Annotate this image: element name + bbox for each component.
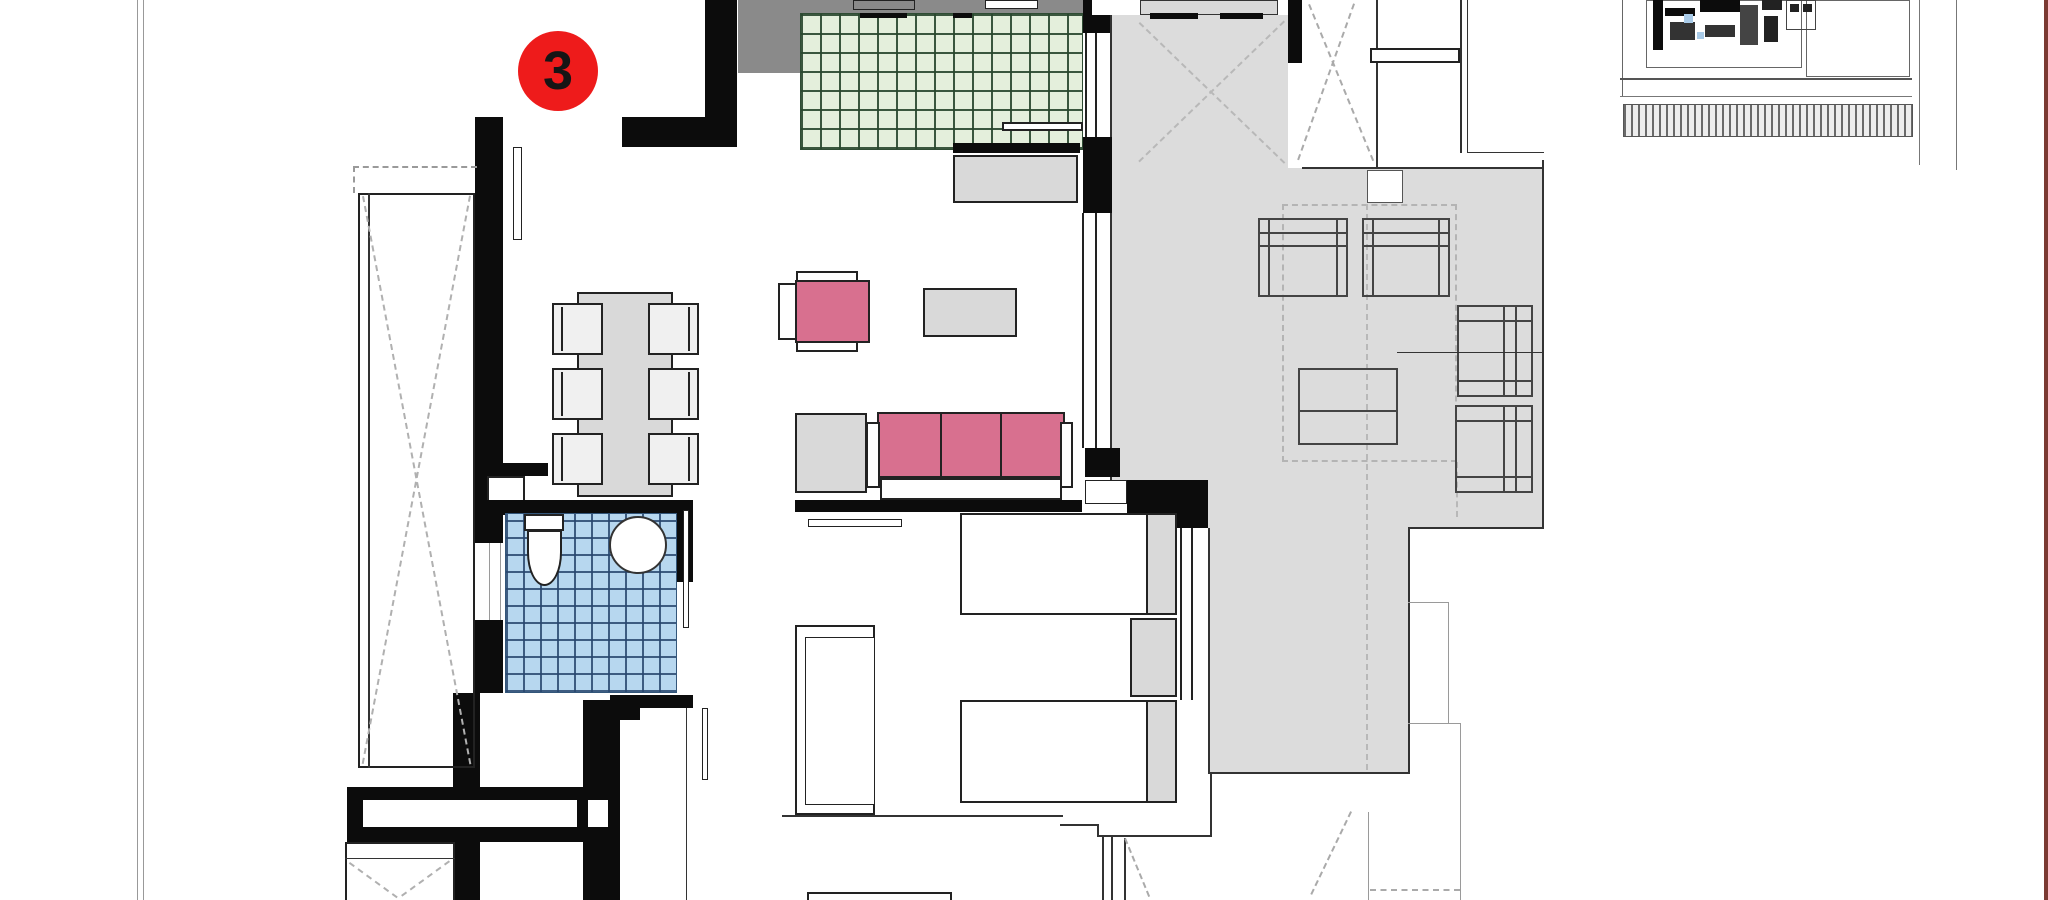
site-fence-line	[1956, 0, 1957, 170]
room-outline-line	[1060, 824, 1097, 826]
page-edge-line	[2044, 0, 2048, 900]
coffee-table	[923, 288, 1017, 337]
terrace-edge-line	[1408, 528, 1410, 773]
unit-number-badge: 3	[518, 31, 598, 111]
wall-segment	[583, 700, 640, 720]
kitchen-counter-band	[800, 0, 1083, 13]
thumbnail-hedge-hatch	[1623, 104, 1913, 137]
armchair-cushion	[795, 280, 870, 343]
wall-segment	[705, 0, 737, 117]
dining-chair	[552, 368, 603, 420]
unit-number: 3	[543, 40, 573, 102]
kitchen-counter-zone	[738, 0, 800, 73]
neighbor-dashed-line	[1370, 889, 1460, 891]
terrace-floor	[1110, 168, 1127, 480]
toilet-tank	[524, 514, 564, 531]
terrace-floor	[1208, 528, 1408, 773]
thumbnail-plan-block	[1705, 25, 1735, 37]
terrace-edge-line	[1408, 527, 1544, 529]
entry-hall-door-gap	[487, 476, 525, 502]
bed-pillow	[1146, 515, 1175, 613]
bathroom-door-jamb	[500, 543, 501, 620]
thumbnail-plan-block	[1764, 16, 1778, 42]
dining-chair	[552, 433, 603, 485]
thumbnail-plan-block	[1790, 4, 1799, 12]
thumbnail-plan-block	[1740, 5, 1758, 45]
thumbnail-frame-line	[1622, 0, 1623, 96]
stair-dashed-line	[1297, 3, 1355, 160]
neighbor-outline	[1460, 723, 1461, 900]
wall-segment	[475, 117, 503, 463]
door-jamb-line	[1124, 838, 1126, 900]
wall-segment	[795, 500, 1082, 512]
bedroom-shelf	[808, 519, 902, 527]
terrace-hatch-box	[1367, 170, 1403, 203]
stair-landing-bar	[1370, 48, 1460, 63]
dining-chair	[648, 433, 699, 485]
terrace-bench-tick	[1150, 13, 1198, 19]
stair-wall	[1288, 0, 1302, 63]
dining-chair	[648, 303, 699, 355]
terrace-armchair	[1362, 218, 1450, 297]
floor-plan-canvas: 3	[0, 0, 2048, 900]
room-outline-line	[1210, 773, 1212, 837]
terrace-floor	[1110, 15, 1288, 168]
terrace-edge-line	[1110, 15, 1112, 480]
door-jamb-line	[1111, 836, 1113, 900]
door-swing-dashed	[1124, 838, 1150, 897]
wall-segment	[475, 476, 487, 502]
terrace-armchair	[1455, 405, 1533, 493]
thumbnail-plan-block	[1670, 22, 1695, 40]
stair-line	[1460, 0, 1462, 153]
neighbor-outline	[1408, 602, 1448, 603]
wall-segment	[622, 117, 737, 147]
kitchen-window-notch	[1092, 0, 1110, 15]
site-plan-thumbnail	[1620, 0, 1920, 145]
tv-cabinet	[953, 155, 1078, 203]
sofa-seat	[877, 412, 1065, 478]
dining-chair	[648, 368, 699, 420]
bed	[960, 700, 1177, 803]
nightstand	[1130, 618, 1177, 697]
site-fence-line	[1919, 0, 1920, 165]
sofa-cushion-divider	[940, 414, 942, 476]
entry-door-leaf	[513, 147, 522, 240]
bathroom-door-leaf	[683, 510, 689, 628]
terrace-level-line	[1397, 352, 1543, 353]
stair-line	[1376, 0, 1378, 168]
washbasin	[609, 516, 667, 574]
wall-segment	[475, 620, 503, 693]
thumbnail-plan-bath-dot	[1684, 14, 1693, 23]
sofa-backrest	[880, 478, 1062, 500]
thumbnail-plan-block	[1653, 0, 1663, 50]
kitchen-counter-tick	[860, 13, 907, 18]
bathroom-door-jamb	[489, 543, 490, 620]
wall-segment	[1085, 448, 1120, 477]
service-shaft-cavity	[363, 800, 577, 827]
kitchen-sink-box	[985, 0, 1038, 9]
wall-segment	[475, 463, 548, 476]
hall-closet-inner-line	[368, 193, 370, 768]
sofa-side-table	[795, 413, 867, 493]
terrace-door-gap	[1085, 480, 1127, 504]
neighbor-outline	[1368, 812, 1369, 900]
bed-partial	[807, 892, 952, 900]
bed-pillow	[1146, 702, 1175, 801]
bed	[960, 513, 1177, 615]
kitchen-window	[1085, 33, 1097, 137]
terrace-armchair	[1457, 305, 1533, 397]
stair-line	[1467, 0, 1468, 153]
hall-door-leaf	[702, 708, 708, 780]
terrace-edge-line	[1208, 772, 1410, 774]
sofa-armrest	[866, 422, 880, 488]
bedroom-window	[1180, 528, 1193, 700]
stair-landing-edge-line	[1302, 167, 1543, 169]
thumbnail-plan-block	[1803, 4, 1812, 12]
service-shaft-cavity	[588, 800, 608, 827]
room-outline-line	[782, 815, 1063, 817]
thumbnail-building-outline	[1806, 0, 1910, 77]
thumbnail-plan-block	[1700, 0, 1740, 12]
terrace-table	[1298, 368, 1398, 445]
site-boundary-line	[137, 0, 144, 900]
room-outline-line	[686, 708, 687, 900]
terrace-edge-line	[1542, 160, 1544, 528]
room-outline-line	[1097, 835, 1210, 837]
neighbor-outline	[1448, 602, 1449, 723]
bedroom-wardrobe-inner	[805, 637, 875, 805]
lower-closet-line	[345, 858, 455, 859]
wall-segment	[953, 143, 1080, 153]
neighbor-outline	[1408, 723, 1460, 724]
wall-segment	[1083, 137, 1112, 213]
wall-segment	[475, 500, 503, 543]
closet-dashed-top	[353, 166, 477, 168]
kitchen-appliance-outline	[853, 0, 915, 10]
terrace-armchair	[1258, 218, 1348, 297]
sofa-cushion-divider	[1000, 414, 1002, 476]
door-jamb-line	[1102, 836, 1104, 900]
kitchen-counter-tick	[953, 13, 972, 18]
thumbnail-plan-bath-dot	[1697, 32, 1704, 39]
thumbnail-frame-line	[1620, 96, 1912, 97]
kitchen-bar-counter	[1002, 122, 1083, 131]
neighbor-door-swing-dashed	[1310, 811, 1352, 895]
dining-chair	[552, 303, 603, 355]
stair-dashed-line	[1308, 4, 1374, 161]
living-room-window	[1082, 213, 1097, 448]
terrace-edge-line	[1208, 528, 1210, 773]
thumbnail-plan-block	[1762, 0, 1782, 10]
stair-line	[1467, 152, 1544, 153]
thumbnail-frame-line	[1620, 78, 1912, 80]
terrace-bench-tick	[1220, 13, 1263, 19]
closet-dashed-side	[353, 166, 355, 193]
